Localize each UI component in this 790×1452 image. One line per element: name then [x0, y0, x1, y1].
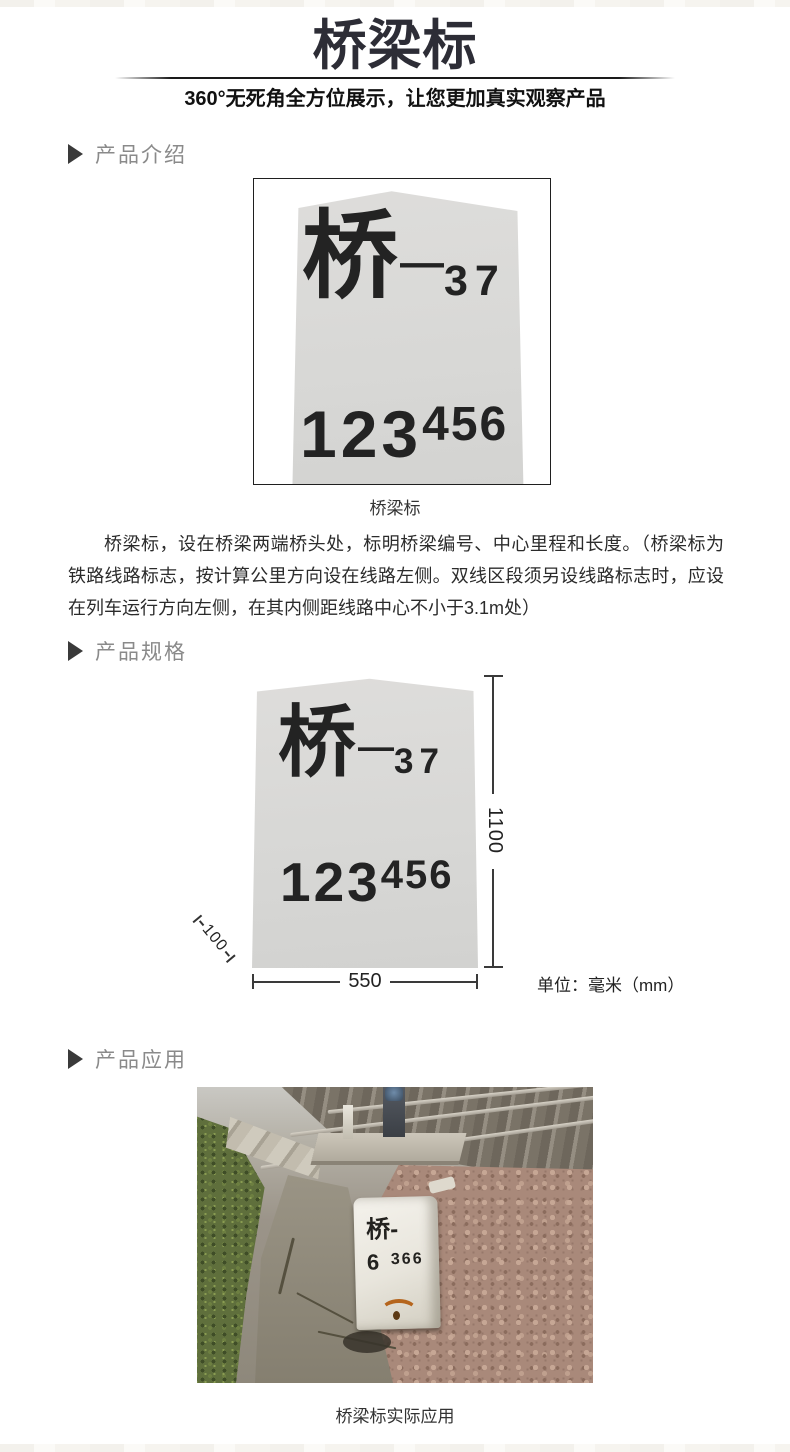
height-dim-line-upper [492, 677, 494, 794]
photo-stone-bridge-char: 桥- [366, 1209, 399, 1245]
top-edge-strip [0, 0, 790, 7]
marker-mileage-sup: 456 [422, 401, 508, 449]
height-dim-line-lower [492, 869, 494, 967]
intro-marker-figure: 桥 — 37 123 456 [253, 178, 551, 485]
marker-line-bridge-number: 桥 — 37 [302, 209, 506, 305]
section-label: 产品规格 [95, 636, 187, 666]
marker-bridge-char: 桥 [302, 209, 398, 305]
section-label: 产品介绍 [95, 139, 187, 169]
marker-line-mileage: 123 456 [300, 401, 508, 467]
height-dim-tick-bottom [484, 966, 503, 968]
triangle-bullet-icon [68, 144, 83, 164]
triangle-bullet-icon [68, 1049, 83, 1069]
intro-figure-caption: 桥梁标 [0, 494, 790, 519]
marker-line-bridge-number: 桥 — 37 [278, 703, 445, 781]
page-title: 桥梁标 [0, 16, 790, 76]
product-detail-page: 桥梁标 360°无死角全方位展示，让您更加真实观察产品 产品介绍 桥 — 37 … [0, 0, 790, 1452]
stone-shadow [343, 1331, 391, 1353]
width-dim-line-left [254, 981, 340, 983]
marker-mileage-main: 123 [280, 855, 381, 910]
marker-mileage-sup: 456 [381, 855, 454, 895]
depth-dim: 100 [190, 912, 238, 965]
section-header-intro: 产品介绍 [68, 141, 187, 167]
photo-stone-km: 6 [367, 1249, 380, 1275]
depth-dim-line-right [224, 951, 229, 957]
bottom-edge-strip [0, 1444, 790, 1452]
spec-marker-stone-illustration: 桥 — 37 123 456 [252, 677, 478, 968]
product-description: 桥梁标，设在桥梁两端桥头处，标明桥梁编号、中心里程和长度。（桥梁标为铁路线路标志… [68, 528, 724, 624]
triangle-bullet-icon [68, 641, 83, 661]
title-divider [115, 77, 675, 79]
photo-stone-m: 366 [391, 1250, 424, 1269]
marker-dash: — [400, 241, 444, 285]
marker-line-mileage: 123 456 [280, 855, 454, 910]
concrete-platform [312, 1133, 467, 1161]
marker-bridge-char: 桥 [278, 703, 356, 781]
marker-bridge-no: 37 [394, 744, 445, 779]
unit-label: 单位：毫米（mm） [537, 971, 684, 996]
width-dim-line-right [390, 981, 476, 983]
rust-stain-dot [393, 1311, 400, 1320]
width-dim-label: 550 [340, 970, 390, 993]
section-header-spec: 产品规格 [68, 638, 187, 664]
marker-dash: — [358, 729, 394, 765]
white-post [343, 1105, 353, 1139]
application-photo-caption: 桥梁标实际应用 [0, 1402, 790, 1427]
signal-head [385, 1087, 403, 1101]
bridge-marker-stone-illustration: 桥 — 37 123 456 [254, 179, 550, 484]
application-photo: 桥- 6 366 [197, 1087, 593, 1383]
section-label: 产品应用 [95, 1044, 187, 1074]
height-dim-label: 1100 [482, 794, 506, 868]
section-header-app: 产品应用 [68, 1046, 187, 1072]
page-subtitle: 360°无死角全方位展示，让您更加真实观察产品 [0, 86, 790, 112]
marker-mileage-main: 123 [300, 401, 422, 467]
width-dim-tick-right [476, 974, 478, 989]
marker-bridge-no: 37 [444, 260, 506, 303]
depth-dim-line-left [199, 920, 204, 926]
